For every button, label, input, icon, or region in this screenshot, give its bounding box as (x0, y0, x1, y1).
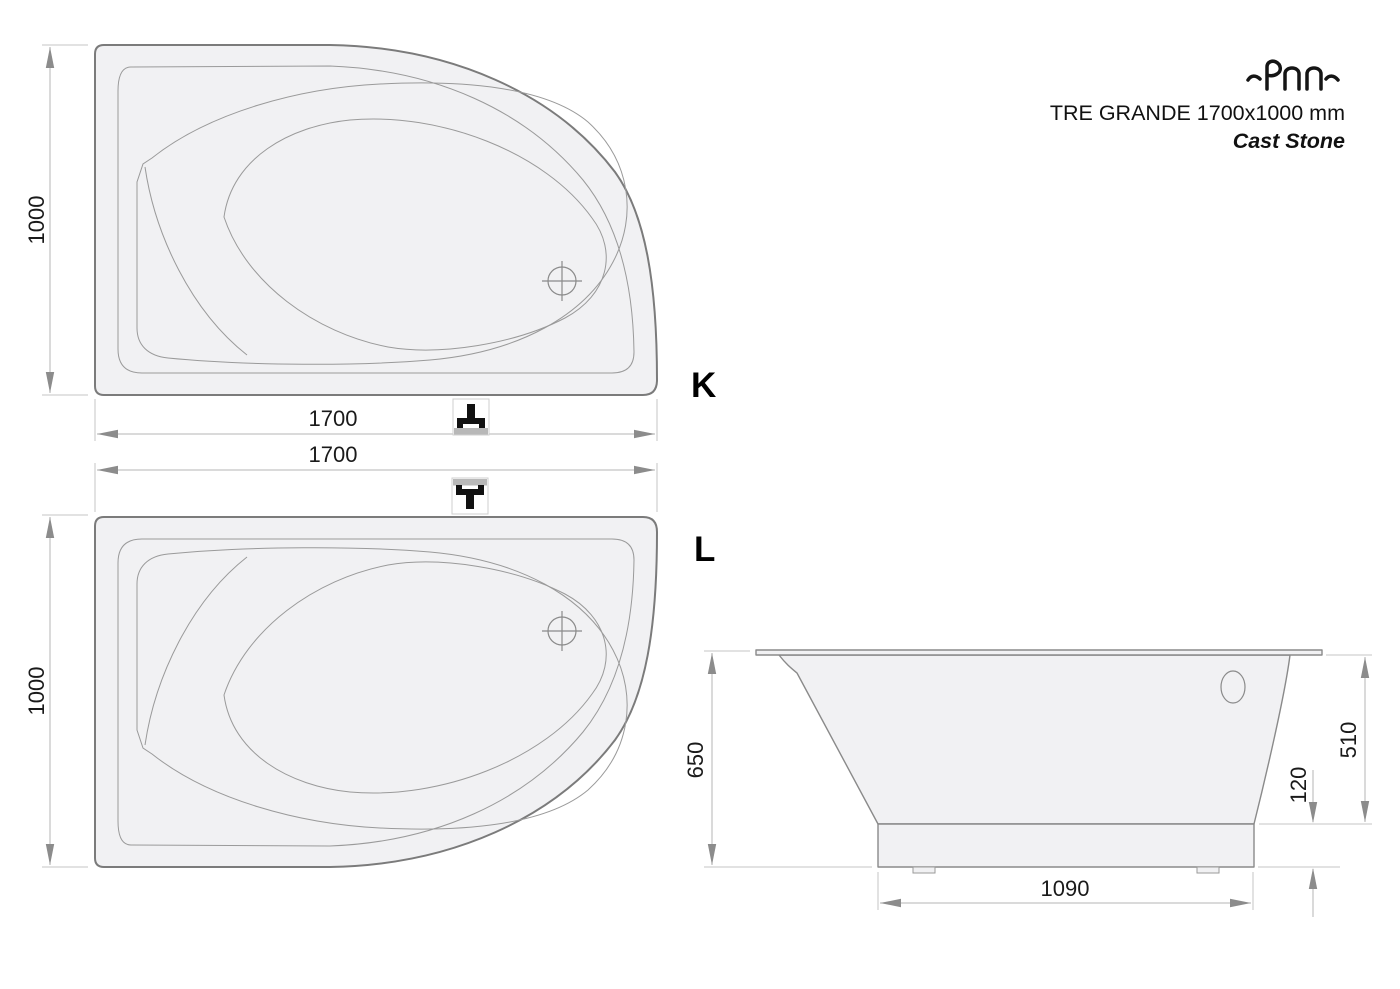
dim-side-base-length-label: 1090 (1041, 876, 1090, 901)
dim-side-base-height-label: 120 (1286, 767, 1311, 804)
dim-side-rim-to-base-label: 510 (1336, 722, 1361, 759)
technical-drawing-sheet: 1000 1700 K 1700 (0, 0, 1400, 989)
header: TRE GRANDE 1700x1000 mm Cast Stone (1050, 61, 1345, 153)
dim-k-width-label: 1000 (24, 196, 49, 245)
view-label-l: L (694, 530, 715, 569)
side-plinth (878, 824, 1254, 867)
faucet-position-icon-l (452, 478, 488, 514)
side-foot-left (913, 867, 935, 873)
side-tub-body (779, 655, 1290, 824)
material-subtitle: Cast Stone (1233, 129, 1345, 153)
dim-side-total-height-label: 650 (683, 742, 708, 779)
dim-l-width-label: 1000 (24, 667, 49, 716)
plan-view-k: 1000 1700 K (24, 45, 716, 441)
dim-l-length: 1700 (95, 442, 657, 512)
faucet-position-icon-k (453, 399, 489, 435)
dim-l-width: 1000 (24, 515, 88, 867)
dim-l-length-label: 1700 (309, 442, 358, 467)
side-tub-rim (756, 650, 1322, 655)
bathtub-drawing-svg: 1000 1700 K 1700 (0, 0, 1400, 989)
tub-plan-k (95, 45, 657, 395)
tub-plan-l (95, 517, 657, 867)
dim-k-length-label: 1700 (309, 406, 358, 431)
paa-logo-icon (1248, 61, 1338, 89)
product-title: TRE GRANDE 1700x1000 mm (1050, 101, 1345, 125)
view-label-k: K (691, 366, 716, 405)
plan-view-l: 1700 1000 L (24, 442, 715, 867)
dim-k-length: 1700 (95, 399, 657, 441)
dim-side-base-height: 120 (1258, 767, 1340, 917)
side-view: 650 510 120 1090 (683, 650, 1372, 917)
side-foot-right (1197, 867, 1219, 873)
dim-side-base-length: 1090 (878, 872, 1253, 910)
dim-k-width: 1000 (24, 45, 88, 395)
